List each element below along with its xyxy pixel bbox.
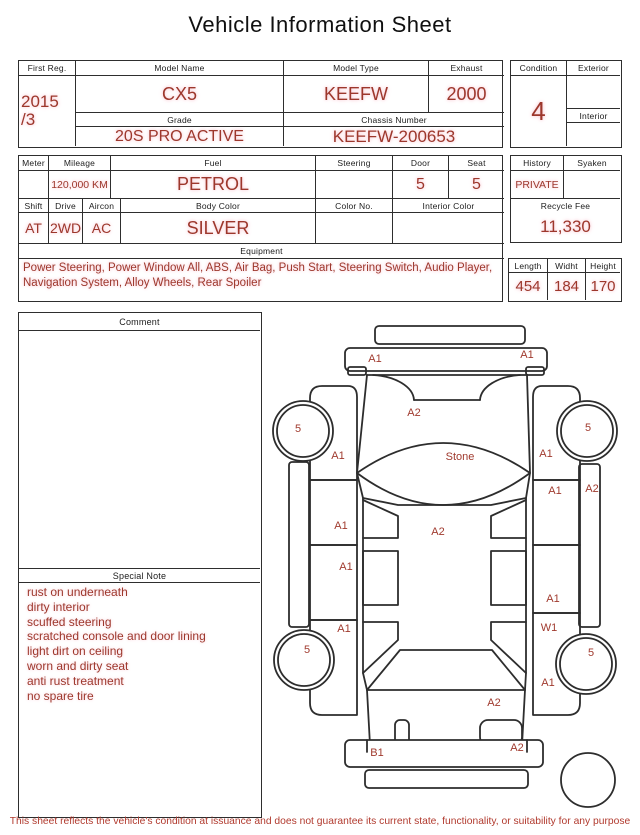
first-reg-label: First Reg.: [19, 61, 76, 76]
damage-label-a1: A1: [368, 353, 381, 365]
meter-value: [19, 171, 49, 199]
exterior-value: [567, 76, 620, 109]
mileage-label: Mileage: [49, 156, 111, 171]
equipment-value: Power Steering, Power Window All, ABS, A…: [19, 259, 504, 300]
special-note-item: scuffed steering: [19, 615, 263, 630]
damage-label-stone: Stone: [446, 451, 475, 463]
special-note-list: rust on underneathdirty interiorscuffed …: [19, 585, 263, 703]
grade-value: 20S PRO ACTIVE: [76, 127, 284, 146]
model-name-label: Model Name: [76, 61, 284, 76]
color-no-value: [316, 213, 393, 244]
interior-color-value: [393, 213, 504, 244]
shift-label: Shift: [19, 199, 49, 213]
specs-table: Meter Mileage Fuel Steering Door Seat 12…: [18, 155, 503, 302]
special-note-item: light dirt on ceiling: [19, 644, 263, 659]
left-rear-door: [310, 545, 357, 620]
special-note-label: Special Note: [19, 568, 260, 583]
interior-color-label: Interior Color: [393, 199, 504, 213]
chassis-label: Chassis Number: [284, 113, 504, 127]
condition-value: 4: [511, 76, 567, 146]
left-front-door: [310, 480, 357, 545]
drive-label: Drive: [49, 199, 83, 213]
damage-label-a2: A2: [585, 483, 598, 495]
damage-label-a1: A1: [539, 448, 552, 460]
car-damage-diagram: A1A1A255A1StoneA1A1A2A1A2A1A1A1W155A1A2B…: [270, 315, 630, 810]
damage-label-5: 5: [295, 423, 301, 435]
damage-label-5: 5: [585, 422, 591, 434]
vehicle-identity-table: First Reg. 2015 /3 Model Name Model Type…: [18, 60, 503, 148]
comment-box: Comment Special Note rust on underneathd…: [18, 312, 262, 818]
model-type-value: KEEFW: [284, 76, 429, 113]
damage-label-b1: B1: [370, 747, 383, 759]
aircon-value: AC: [83, 213, 121, 244]
damage-label-a1: A1: [337, 623, 350, 635]
aircon-label: Aircon: [83, 199, 121, 213]
damage-label-5: 5: [588, 647, 594, 659]
door-value: 5: [393, 171, 449, 199]
damage-label-a1: A1: [541, 677, 554, 689]
syaken-label: Syaken: [564, 156, 620, 171]
height-label: Height: [586, 259, 620, 273]
interior-value: [567, 123, 620, 146]
width-label: Widht: [548, 259, 586, 273]
dimensions-box: Length Widht Height 454 184 170: [508, 258, 622, 302]
damage-label-a1: A1: [520, 349, 533, 361]
first-reg-value: 2015 /3: [19, 76, 76, 146]
left-door-window: [363, 551, 398, 605]
exhaust-label: Exhaust: [429, 61, 504, 76]
damage-label-5: 5: [304, 644, 310, 656]
exhaust-value: 2000: [429, 76, 504, 113]
special-note-item: no spare tire: [19, 689, 263, 704]
condition-label: Condition: [511, 61, 567, 76]
body-left-edge: [357, 375, 367, 690]
meter-label: Meter: [19, 156, 49, 171]
width-value: 184: [548, 273, 586, 300]
damage-label-w1: W1: [541, 622, 558, 634]
steering-value: [316, 171, 393, 199]
steering-label: Steering: [316, 156, 393, 171]
right-a-pillar-window: [491, 500, 526, 538]
color-no-label: Color No.: [316, 199, 393, 213]
syaken-value: [564, 171, 620, 199]
front-left-wheel: [273, 401, 333, 461]
spare-tire-circle: [561, 753, 615, 807]
door-label: Door: [393, 156, 449, 171]
history-box: History Syaken PRIVATE Recycle Fee 11,33…: [510, 155, 622, 243]
length-value: 454: [509, 273, 548, 300]
left-headlight-arc: [373, 375, 414, 400]
special-note-item: scratched console and door lining: [19, 629, 263, 644]
left-sill: [289, 462, 309, 627]
recycle-fee-value: 11,330: [511, 213, 620, 241]
exterior-label: Exterior: [567, 61, 620, 76]
rear-left-wheel: [274, 630, 334, 690]
body-color-value: SILVER: [121, 213, 316, 244]
car-outline: [273, 326, 617, 807]
seat-label: Seat: [449, 156, 504, 171]
disclaimer: This sheet reflects the vehicle's condit…: [0, 816, 640, 827]
damage-label-a2: A2: [407, 407, 420, 419]
chassis-value: KEEFW-200653: [284, 127, 504, 146]
model-type-label: Model Type: [284, 61, 429, 76]
equipment-label: Equipment: [19, 244, 504, 259]
comment-value: [19, 331, 260, 568]
damage-label-a2: A2: [487, 697, 500, 709]
front-top-strip: [375, 326, 525, 344]
recycle-fee-label: Recycle Fee: [511, 199, 620, 213]
special-note-item: anti rust treatment: [19, 674, 263, 689]
right-headlight-arc: [480, 375, 520, 400]
damage-label-a2: A2: [510, 742, 523, 754]
damage-label-a1: A1: [546, 593, 559, 605]
damage-label-a1: A1: [331, 450, 344, 462]
condition-box: Condition 4 Exterior Interior: [510, 60, 622, 148]
left-quarter-window: [363, 622, 398, 673]
comment-label: Comment: [19, 313, 260, 331]
left-a-pillar-window: [363, 500, 398, 538]
body-color-label: Body Color: [121, 199, 316, 213]
fuel-value: PETROL: [111, 171, 316, 199]
damage-label-a1: A1: [339, 561, 352, 573]
body-right-edge: [525, 375, 530, 690]
seat-value: 5: [449, 171, 504, 199]
fuel-label: Fuel: [111, 156, 316, 171]
page-title: Vehicle Information Sheet: [0, 12, 640, 38]
special-note-item: dirty interior: [19, 600, 263, 615]
damage-label-a1: A1: [548, 485, 561, 497]
damage-label-a2: A2: [431, 526, 444, 538]
rear-bottom-strip: [365, 770, 528, 788]
interior-label: Interior: [567, 109, 620, 123]
height-value: 170: [586, 273, 620, 300]
mileage-value: 120,000 KM: [49, 171, 111, 199]
model-name-value: CX5: [76, 76, 284, 113]
history-label: History: [511, 156, 564, 171]
right-quarter-window: [491, 622, 526, 673]
shift-value: AT: [19, 213, 49, 244]
grade-label: Grade: [76, 113, 284, 127]
special-note-item: worn and dirty seat: [19, 659, 263, 674]
drive-value: 2WD: [49, 213, 83, 244]
rear-right-wheel: [556, 634, 616, 694]
rear-window: [367, 650, 525, 690]
special-note-item: rust on underneath: [19, 585, 263, 600]
length-label: Length: [509, 259, 548, 273]
windshield: [357, 443, 530, 505]
damage-label-a1: A1: [334, 520, 347, 532]
history-value: PRIVATE: [511, 171, 564, 199]
roof-front-edge: [363, 498, 526, 505]
right-door-window: [491, 551, 526, 605]
